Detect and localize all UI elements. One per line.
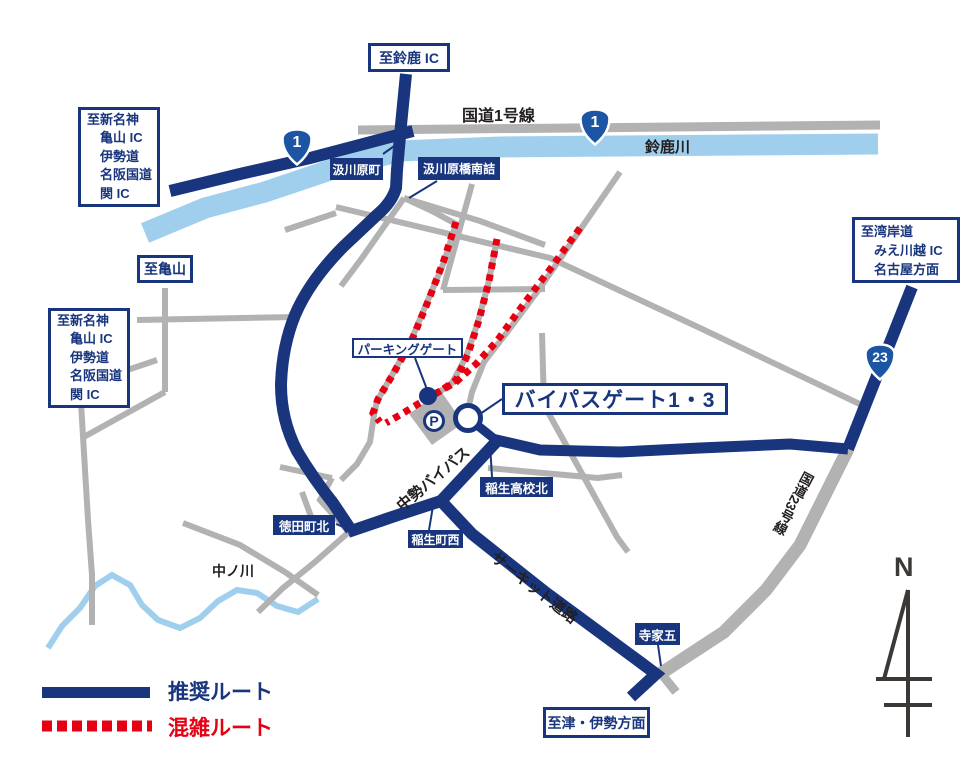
junction-text: 汲川原町 (332, 161, 380, 178)
destination-box-kameyama: 至亀山 (137, 255, 193, 283)
bypass-gate-label: バイパスゲート1・3 (502, 383, 728, 415)
destination-box-tsu-ise: 至津・伊勢方面 (543, 707, 650, 738)
destination-line: 亀山 IC (87, 129, 143, 148)
destination-text: 至亀山 (144, 259, 186, 279)
destination-box-shin-meishin-north: 至新名神 亀山 IC 伊勢道 名阪国道 関 IC (78, 107, 160, 207)
destination-line: 名阪国道 (57, 367, 122, 386)
junction-text: 徳田町北 (279, 516, 329, 535)
parking-gate-marker (419, 387, 437, 405)
junction-label-jike-go: 寺家五 (635, 623, 680, 645)
east-west-road (492, 439, 848, 452)
route-23-shield: 23 (863, 343, 897, 381)
junction-label-ino-koko-kita: 稲生高校北 (480, 477, 553, 497)
parking-symbol: P (429, 413, 438, 429)
suzuka-river (145, 144, 878, 233)
junction-label-kumikawahara: 汲川原町 (330, 158, 383, 180)
nakano-river-label: 中ノ川 (212, 561, 254, 581)
route-1-shield-west: 1 (280, 128, 314, 166)
junction-text: 汲川原橋南詰 (423, 160, 495, 177)
gate-text: パーキングゲート (358, 339, 458, 358)
legend-recommended-label: 推奨ルート (168, 676, 273, 706)
destination-text: 至津・伊勢方面 (548, 713, 646, 733)
compass-north-label: N (894, 552, 914, 583)
route-number: 1 (578, 114, 612, 132)
destination-line: 伊勢道 (57, 349, 109, 368)
junction-label-kumikawahara-bashi: 汲川原橋南詰 (418, 157, 500, 180)
gate-text: バイパスゲート1・3 (515, 384, 716, 414)
destination-box-shin-meishin-west: 至新名神 亀山 IC 伊勢道 名阪国道 関 IC (48, 308, 130, 408)
suzuka-river-label: 鈴鹿川 (645, 136, 690, 157)
route1-gray-road (358, 125, 880, 130)
destination-line: 伊勢道 (87, 148, 139, 167)
parking-gate-label: パーキングゲート (352, 338, 463, 358)
destination-line: 名古屋方面 (861, 260, 939, 279)
destination-line: 至湾岸道 (861, 222, 913, 241)
destination-box-wangan: 至湾岸道 みえ川越 IC 名古屋方面 (852, 217, 960, 283)
route-number: 1 (280, 134, 314, 152)
route-number: 23 (863, 349, 897, 365)
destination-box-suzuka-ic: 至鈴鹿 IC (368, 43, 450, 72)
junction-label-inocho-nishi: 稲生町西 (408, 530, 463, 548)
nakano-river (48, 575, 318, 648)
legend-congested-label: 混雑ルート (168, 712, 273, 742)
destination-line: 至新名神 (87, 111, 139, 130)
destination-line: 関 IC (87, 185, 130, 204)
access-map: 1 1 23 至鈴鹿 IC 至新名神 亀山 IC 伊勢道 名阪国道 関 IC 至… (0, 0, 980, 760)
junction-text: 稲生町西 (411, 531, 459, 548)
compass-arrow (876, 590, 932, 737)
destination-line: 名阪国道 (87, 166, 152, 185)
route-1-shield-east: 1 (578, 108, 612, 146)
destination-line: みえ川越 IC (861, 241, 943, 260)
destination-line: 関 IC (57, 386, 100, 405)
legend-recommended-line (42, 687, 150, 698)
destination-line: 至新名神 (57, 312, 109, 331)
route23-gray-road (660, 449, 848, 674)
destination-text: 至鈴鹿 IC (379, 48, 439, 68)
route1-road-label: 国道1号線 (462, 102, 535, 126)
destination-line: 亀山 IC (57, 330, 113, 349)
junction-label-tokudacho-kita: 徳田町北 (273, 515, 335, 535)
parking-icon: P (423, 410, 445, 432)
bypass-gate-connector (477, 425, 497, 441)
bypass-gate-marker (456, 406, 481, 431)
junction-text: 寺家五 (639, 625, 677, 644)
junction-text: 稲生高校北 (485, 478, 548, 497)
